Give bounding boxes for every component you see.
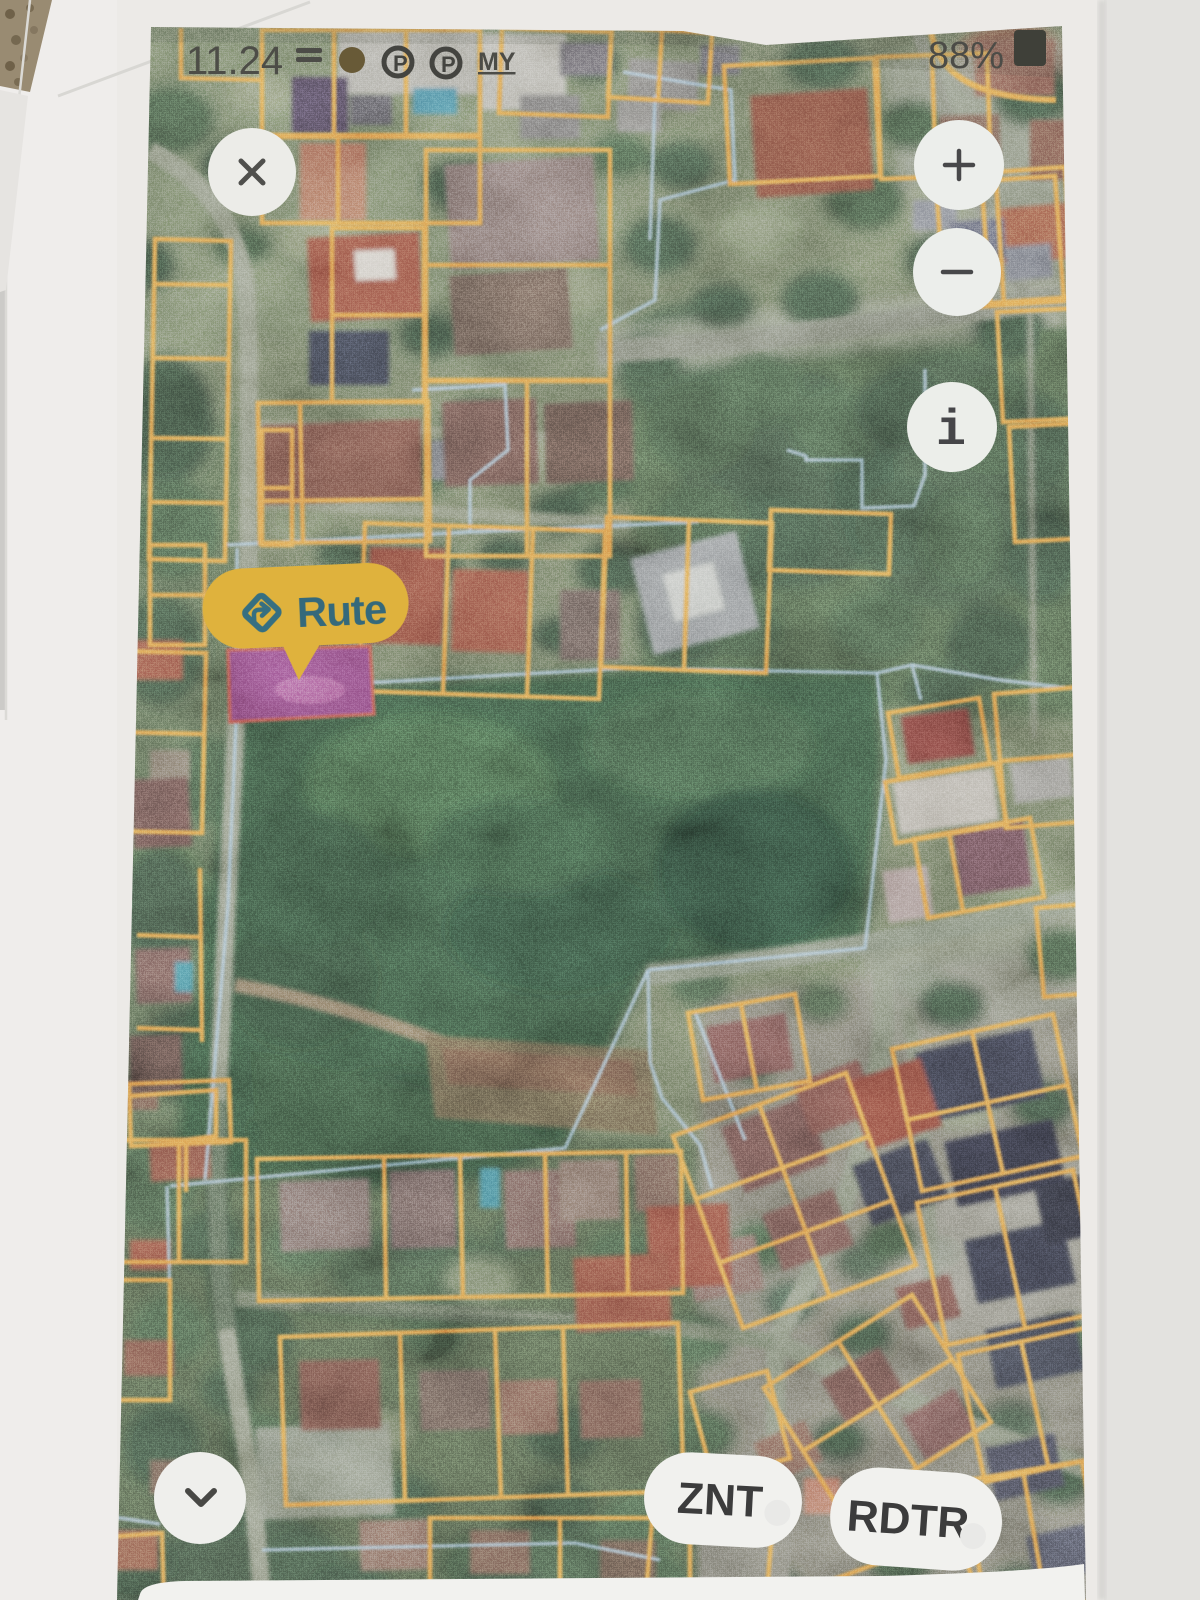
svg-text:i: i — [936, 403, 966, 460]
svg-text:11.24: 11.24 — [186, 39, 283, 83]
svg-text:P: P — [441, 52, 456, 77]
svg-text:88%: 88% — [928, 35, 1004, 77]
svg-text:P: P — [393, 51, 408, 76]
svg-text:ZNT: ZNT — [676, 1474, 764, 1527]
svg-text:RDTR: RDTR — [845, 1491, 970, 1548]
svg-text:Rute: Rute — [296, 585, 387, 636]
svg-text:MY: MY — [478, 48, 516, 76]
